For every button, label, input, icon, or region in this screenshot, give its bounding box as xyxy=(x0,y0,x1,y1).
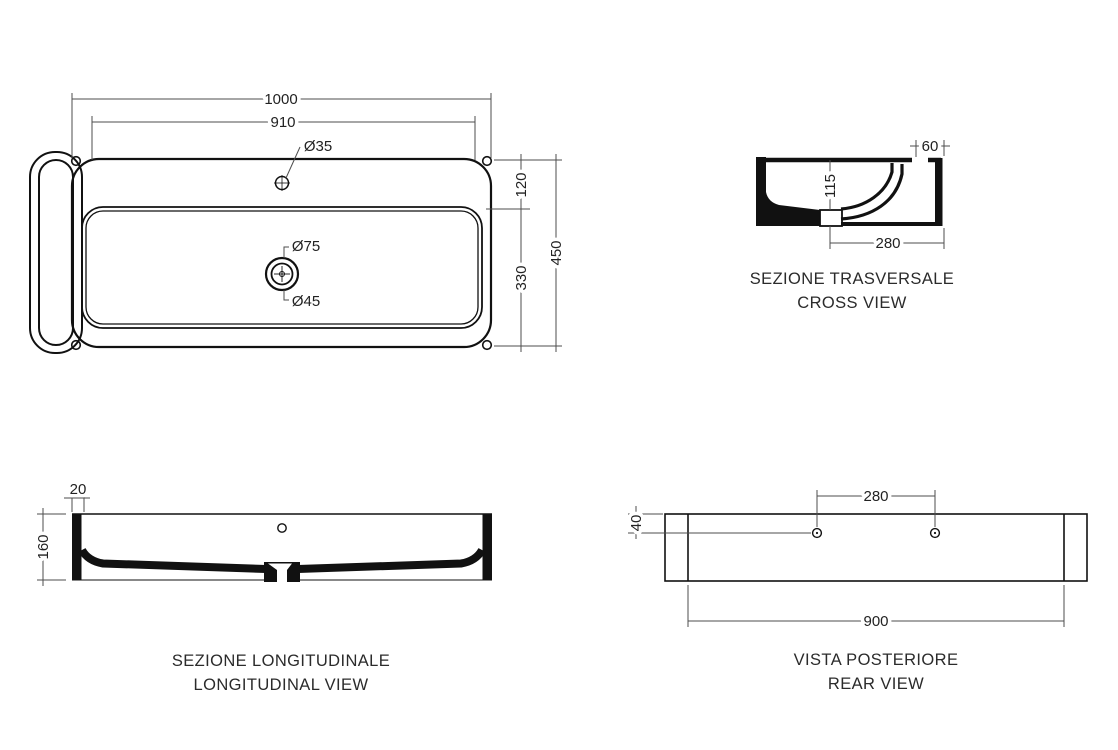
longitudinal-title-en: LONGITUDINAL VIEW xyxy=(194,676,369,694)
dimension-rim-width: 910 xyxy=(92,114,475,160)
long-right-wall xyxy=(483,514,493,580)
dim-label-280-cross: 280 xyxy=(875,235,900,252)
dimension-tap-edge-offset: 60 xyxy=(910,138,950,157)
dimension-hole-spacing: 280 xyxy=(817,488,935,527)
corner-mount-tabs xyxy=(72,157,492,350)
cross-drain-box xyxy=(820,210,842,226)
dim-label-115: 115 xyxy=(822,174,839,198)
tap-hole xyxy=(274,175,290,191)
dim-label-450: 450 xyxy=(548,240,565,265)
dim-label-1000: 1000 xyxy=(264,91,297,108)
cross-right-wall xyxy=(935,158,943,226)
dimension-wall-thickness: 20 xyxy=(64,481,90,512)
dim-label-160: 160 xyxy=(35,534,52,559)
cross-view-title-it: SEZIONE TRASVERSALE xyxy=(750,270,954,288)
long-tap-hole xyxy=(278,524,286,532)
cross-overflow-channel xyxy=(841,163,902,219)
basin-outline xyxy=(72,159,491,347)
dimension-hole-top-offset: 40 xyxy=(628,506,811,539)
dim-label-60: 60 xyxy=(922,138,939,155)
dimension-bowl-height: 115 xyxy=(822,160,839,210)
top-view: 1000 910 Ø35 Ø75 Ø45 xyxy=(30,91,565,353)
long-left-wall xyxy=(72,514,82,580)
dim-label-d75: Ø75 xyxy=(292,238,320,255)
dimension-mount-width: 900 xyxy=(688,585,1064,630)
long-drain-boss xyxy=(264,562,300,582)
cross-view-title-en: CROSS VIEW xyxy=(797,294,906,312)
rear-view-title-en: REAR VIEW xyxy=(828,675,924,693)
dim-label-d35: Ø35 xyxy=(304,138,332,155)
dimension-overall-height: 160 xyxy=(35,508,66,586)
rear-mount-holes xyxy=(813,529,940,538)
dimension-depths: 120 330 450 xyxy=(486,154,565,352)
longitudinal-view: 20 160 SEZIONE LONGITUDINALE LONGITUDINA… xyxy=(35,481,492,694)
drain-hole xyxy=(266,258,298,290)
dim-label-910: 910 xyxy=(270,114,295,131)
cross-view: 60 115 280 SEZIONE TRASVERSALE CROSS VIE… xyxy=(750,138,954,312)
dim-label-d45: Ø45 xyxy=(292,293,320,310)
leader-drain-outer: Ø75 xyxy=(284,238,320,258)
dim-label-20: 20 xyxy=(70,481,87,498)
longitudinal-title-it: SEZIONE LONGITUDINALE xyxy=(172,652,390,670)
rear-view: 280 40 900 VISTA POSTERIORE REAR VIEW xyxy=(628,488,1087,693)
leader-drain-inner: Ø45 xyxy=(284,290,320,310)
dim-label-900: 900 xyxy=(863,613,888,630)
rear-view-title-it: VISTA POSTERIORE xyxy=(794,651,959,669)
cross-left-wall-floor xyxy=(756,157,820,226)
dim-label-280-rear: 280 xyxy=(863,488,888,505)
towel-rail xyxy=(30,152,82,353)
dim-label-330: 330 xyxy=(513,265,530,290)
dim-label-120: 120 xyxy=(513,172,530,197)
drawing-canvas: 1000 910 Ø35 Ø75 Ø45 xyxy=(0,0,1118,745)
dimension-drain-offset: 280 xyxy=(830,226,944,252)
dim-label-40: 40 xyxy=(628,515,645,532)
rear-outline xyxy=(665,514,1087,581)
